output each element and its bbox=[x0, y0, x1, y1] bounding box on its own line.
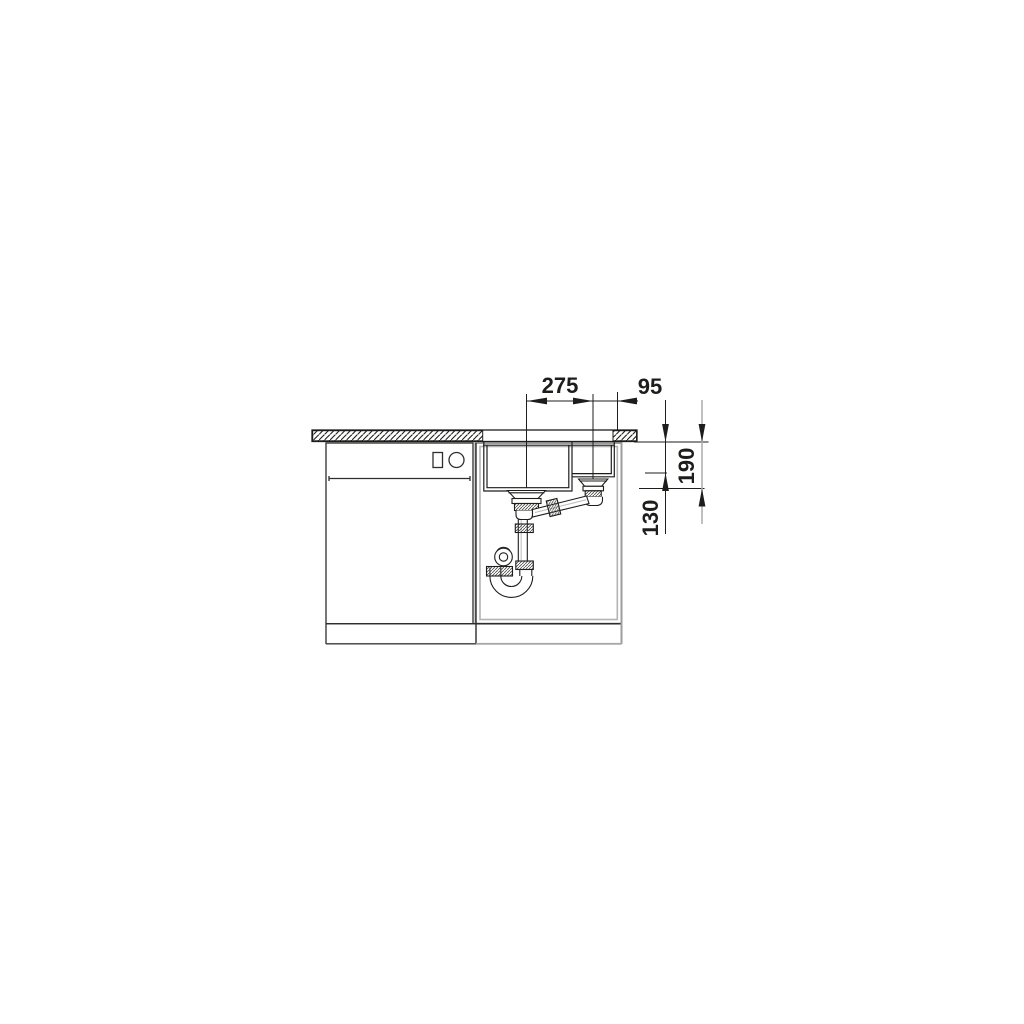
dimension-label-95: 95 bbox=[622, 375, 678, 399]
dimension-label-190: 190 bbox=[675, 436, 699, 496]
trap-siphon bbox=[487, 520, 534, 598]
drawing-canvas: 275 95 190 130 bbox=[0, 0, 1024, 1024]
cabinet-divider-line bbox=[329, 476, 470, 481]
dimension-label-275: 275 bbox=[510, 374, 610, 398]
dimension-arrows bbox=[527, 398, 637, 405]
plinth bbox=[326, 620, 622, 645]
panel-square-symbol bbox=[433, 453, 443, 468]
dimension-label-130: 130 bbox=[639, 488, 663, 548]
left-cabinet bbox=[326, 443, 473, 624]
panel-circle-symbol bbox=[449, 453, 464, 468]
sink-technical-drawing bbox=[0, 0, 1024, 1024]
countertop bbox=[312, 430, 637, 442]
main-bowl bbox=[484, 442, 572, 492]
